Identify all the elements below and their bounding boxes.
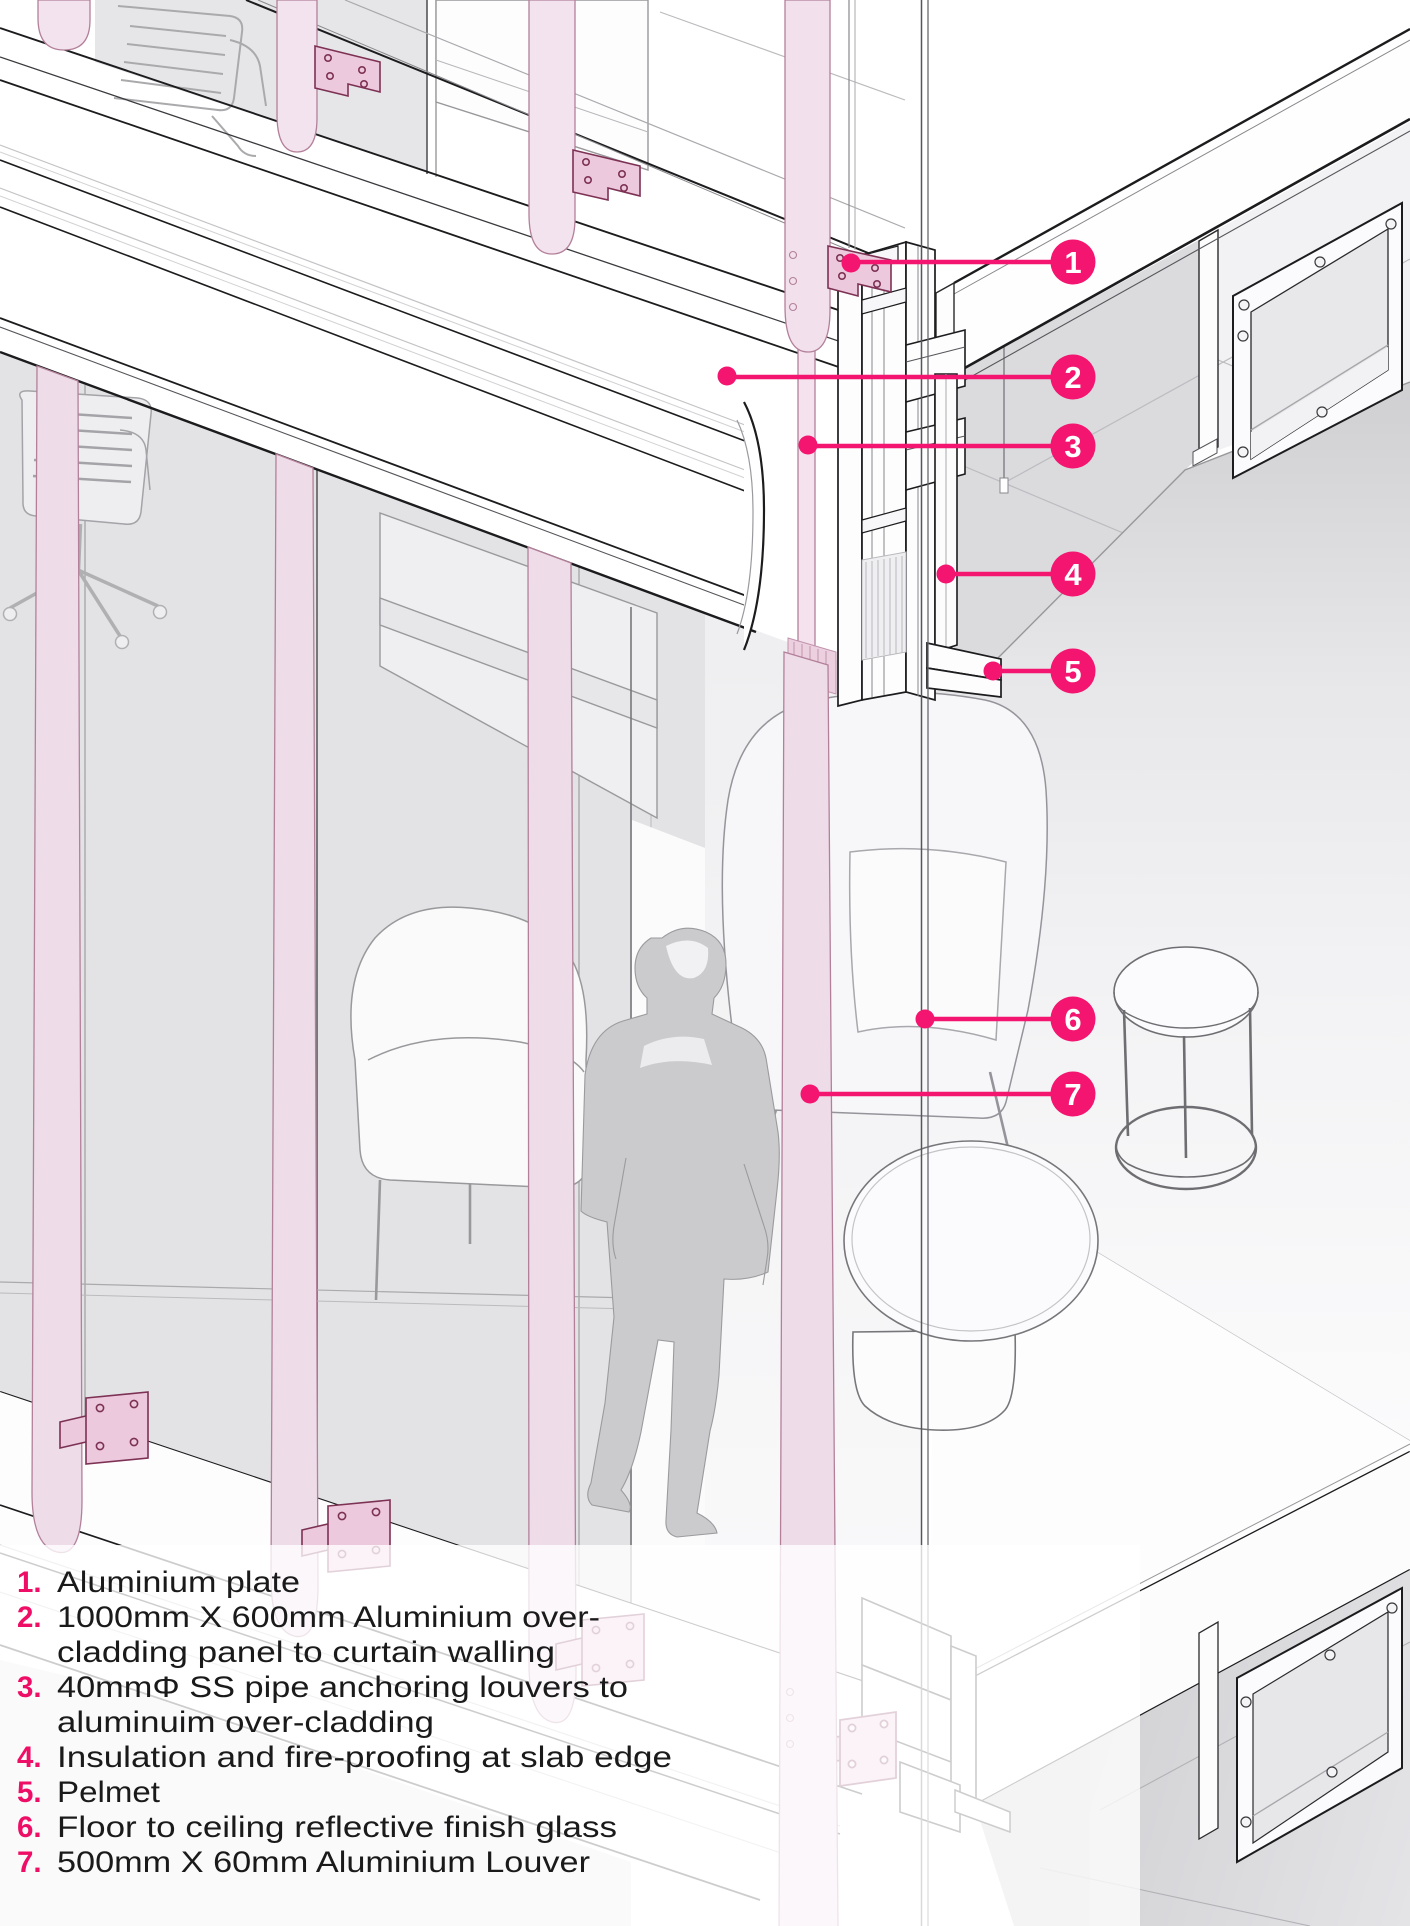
svg-text:aluminuim over-cladding: aluminuim over-cladding: [57, 1706, 434, 1739]
svg-text:6.: 6.: [17, 1811, 42, 1844]
svg-text:5: 5: [1064, 654, 1081, 689]
svg-text:2: 2: [1064, 360, 1081, 395]
svg-text:1000mm X 600mm Aluminium over-: 1000mm X 600mm Aluminium over-: [57, 1601, 600, 1634]
svg-text:Pelmet: Pelmet: [57, 1776, 160, 1809]
svg-text:7.: 7.: [17, 1846, 42, 1879]
svg-text:1: 1: [1064, 245, 1081, 280]
svg-text:4.: 4.: [17, 1741, 42, 1774]
svg-text:7: 7: [1064, 1077, 1081, 1112]
svg-text:cladding panel to curtain wall: cladding panel to curtain walling: [57, 1636, 555, 1669]
svg-text:3: 3: [1064, 429, 1081, 464]
svg-text:40mmΦ SS pipe anchoring louver: 40mmΦ SS pipe anchoring louvers to: [57, 1671, 628, 1704]
svg-text:1.: 1.: [17, 1566, 42, 1599]
svg-text:4: 4: [1064, 557, 1082, 592]
svg-text:500mm X 60mm Aluminium Louver: 500mm X 60mm Aluminium Louver: [57, 1846, 590, 1879]
svg-text:Aluminium plate: Aluminium plate: [57, 1566, 300, 1599]
svg-text:Insulation and fire-proofing a: Insulation and fire-proofing at slab edg…: [57, 1741, 672, 1774]
svg-text:5.: 5.: [17, 1776, 42, 1809]
svg-text:3.: 3.: [17, 1671, 42, 1704]
svg-text:6: 6: [1064, 1002, 1081, 1037]
svg-text:2.: 2.: [17, 1601, 42, 1634]
svg-text:Floor to ceiling reflective fi: Floor to ceiling reflective finish glass: [57, 1811, 617, 1844]
